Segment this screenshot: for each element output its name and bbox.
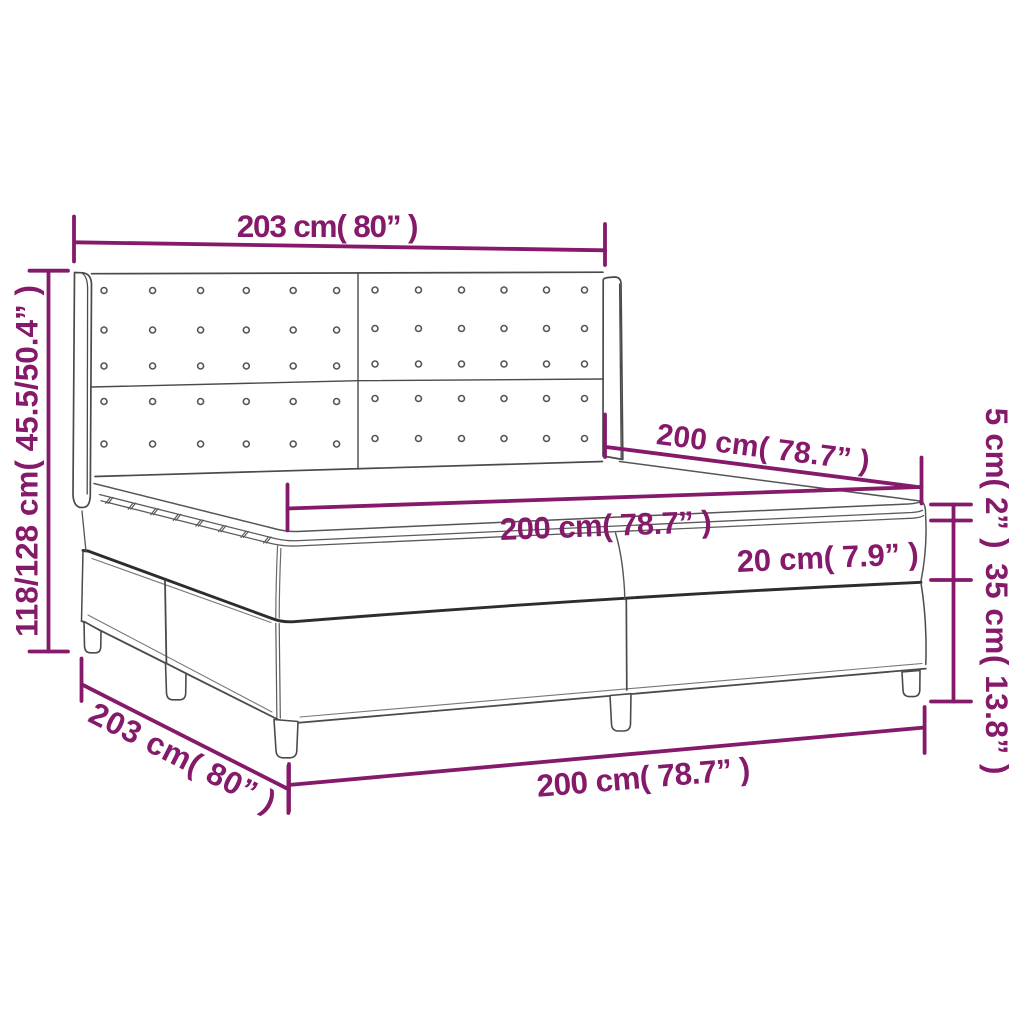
svg-text:5 cm( 2” ): 5 cm( 2” ) — [979, 408, 1015, 549]
svg-text:200 cm( 78.7” ): 200 cm( 78.7” ) — [499, 504, 712, 547]
svg-text:203 cm( 80” ): 203 cm( 80” ) — [83, 695, 282, 820]
svg-text:118/128 cm( 45.5/50.4” ): 118/128 cm( 45.5/50.4” ) — [9, 285, 45, 637]
svg-text:203 cm( 80” ): 203 cm( 80” ) — [237, 208, 418, 244]
svg-text:35 cm( 13.8” ): 35 cm( 13.8” ) — [979, 563, 1015, 775]
svg-text:20 cm( 7.9” ): 20 cm( 7.9” ) — [736, 536, 919, 579]
